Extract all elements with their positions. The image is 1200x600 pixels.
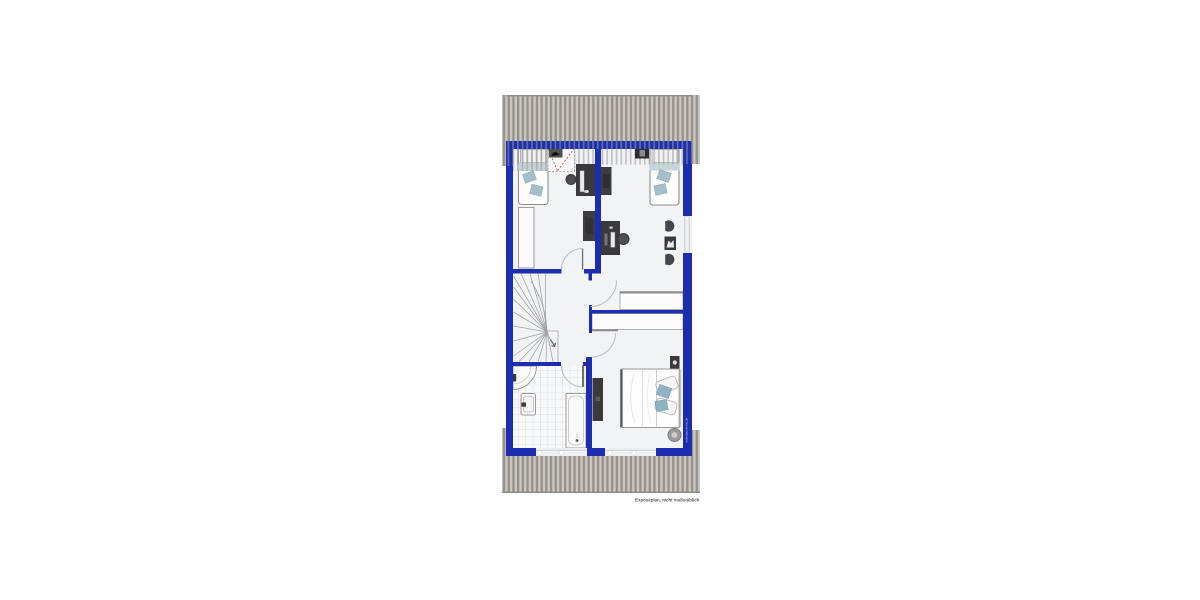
svg-text:wohnbau-immo.de: wohnbau-immo.de xyxy=(685,417,689,442)
svg-text:Exposéplan, nicht maßstäblich: Exposéplan, nicht maßstäblich xyxy=(635,498,700,503)
